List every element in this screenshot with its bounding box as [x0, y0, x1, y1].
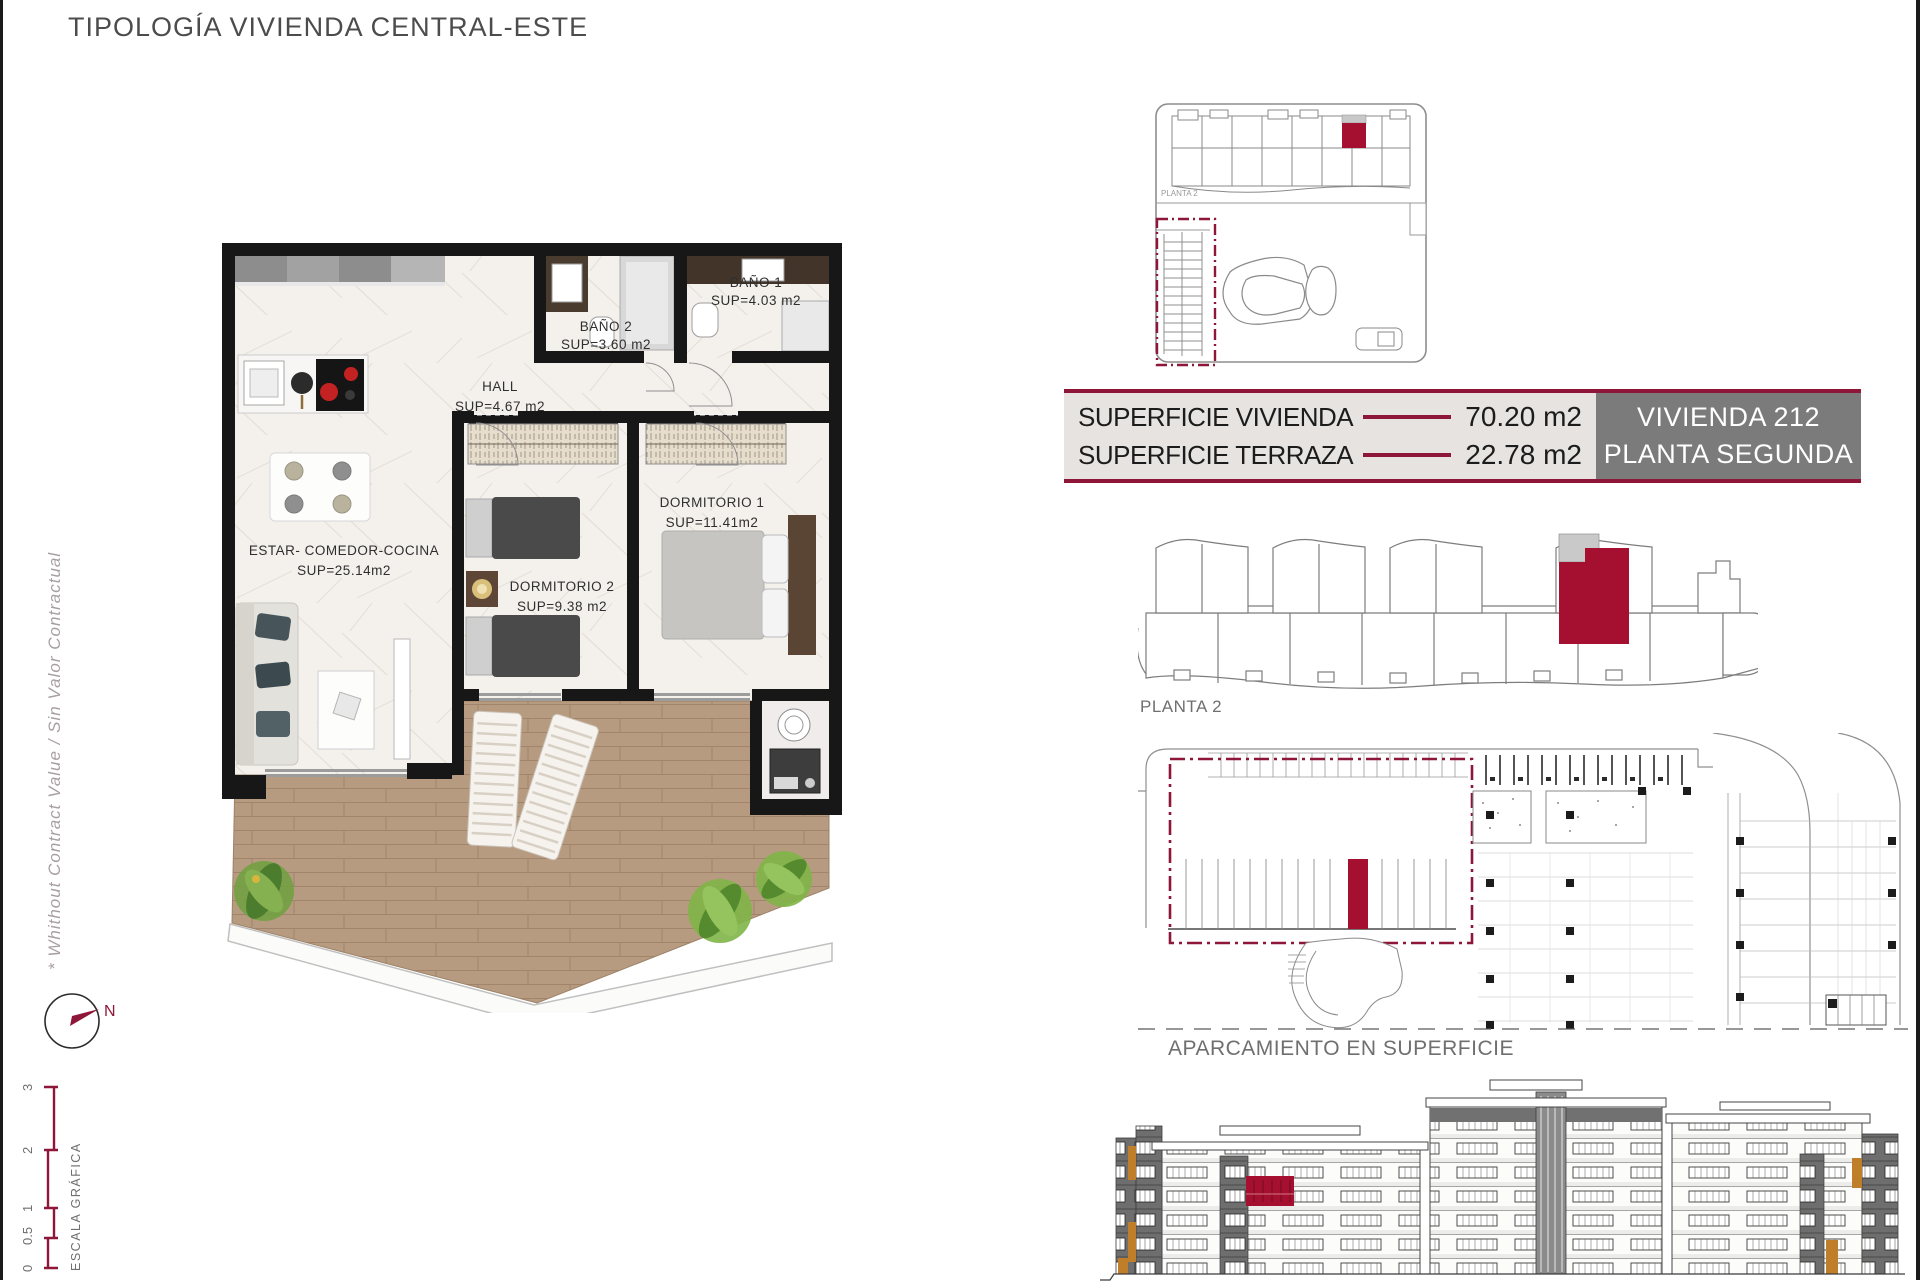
disclaimer-vertical-text: * Whithout Contract Value / Sin Valor Co…	[45, 570, 71, 970]
parking-right-grid	[1728, 793, 1896, 1025]
svg-text:SUP=9.38 m2: SUP=9.38 m2	[517, 599, 607, 614]
site-unit-highlight-cap	[1342, 115, 1366, 123]
svg-text:HALL: HALL	[482, 379, 518, 394]
floor-plan: ESTAR- COMEDOR-COCINA SUP=25.14m2 HALL S…	[222, 243, 842, 1013]
elevation-unit-highlight	[1246, 1176, 1294, 1206]
compass-north-label: N	[104, 1003, 116, 1020]
site-plan: PLANTA 2	[1060, 82, 1460, 382]
unit-number: VIVIENDA 212	[1637, 402, 1820, 433]
compass-needle	[70, 1009, 99, 1026]
site-car-shape	[1356, 328, 1402, 350]
site-unit-highlight	[1342, 123, 1366, 148]
svg-text:SUP=11.41m2: SUP=11.41m2	[666, 515, 759, 530]
orange-accent	[1128, 1222, 1136, 1262]
laundry-niche	[762, 701, 829, 801]
page-root: { "page": { "title": "TIPOLOGÍA VIVIENDA…	[0, 0, 1920, 1280]
parking-top-stalls	[1208, 753, 1468, 777]
planta2-diagram	[1138, 518, 1758, 698]
summary-table: SUPERFICIE VIVIENDA 70.20 m2 SUPERFICIE …	[1064, 389, 1861, 483]
site-pool-blobs	[1223, 257, 1336, 324]
page-right-border	[1916, 0, 1920, 1280]
parking-diagram	[1138, 733, 1908, 1035]
svg-text:SUP=4.67 m2: SUP=4.67 m2	[455, 399, 545, 414]
svg-text:SUP=25.14m2: SUP=25.14m2	[297, 563, 391, 578]
sofa	[236, 603, 298, 765]
sun-lounger	[467, 711, 522, 847]
parking-middle-grid	[1473, 787, 1693, 1029]
bed-dorm2-2	[466, 615, 580, 677]
parking-stall-highlight	[1348, 859, 1368, 929]
nightstand-dorm2	[466, 571, 498, 607]
scale-bar-title: ESCALA GRÁFICA	[68, 1142, 83, 1271]
planta2-diagram-label: PLANTA 2	[1140, 697, 1222, 717]
site-building-band	[1172, 110, 1410, 192]
summary-value: 22.78 m2	[1465, 439, 1582, 471]
elevation-ground-line	[1100, 1274, 1905, 1280]
svg-text:0: 0	[20, 1265, 35, 1272]
orange-accent	[1128, 1146, 1136, 1180]
parking-left-stalls	[1168, 859, 1456, 929]
summary-areas: SUPERFICIE VIVIENDA 70.20 m2 SUPERFICIE …	[1064, 393, 1596, 479]
bed-dorm1	[662, 515, 816, 655]
parking-landscape-blob	[1288, 938, 1402, 1028]
svg-text:3: 3	[20, 1084, 35, 1091]
svg-text:2: 2	[20, 1147, 35, 1154]
orange-accent	[1118, 1258, 1128, 1274]
svg-text:BAÑO 1: BAÑO 1	[730, 275, 783, 290]
svg-text:BAÑO 2: BAÑO 2	[580, 319, 633, 334]
svg-text:DORMITORIO 2: DORMITORIO 2	[510, 579, 615, 594]
summary-dash-line	[1363, 453, 1451, 457]
site-plan-label: PLANTA 2	[1161, 189, 1198, 198]
svg-text:SUP=4.03 m2: SUP=4.03 m2	[711, 293, 801, 308]
unit-floor: PLANTA SEGUNDA	[1604, 439, 1854, 470]
parking-top-stalls-bold	[1486, 755, 1682, 785]
page-title: TIPOLOGÍA VIVIENDA CENTRAL-ESTE	[68, 12, 588, 43]
elevation-diagram	[1100, 1062, 1912, 1282]
parking-diagram-label: APARCAMIENTO EN SUPERFICIE	[1168, 1037, 1514, 1061]
summary-row-terraza: SUPERFICIE TERRAZA 22.78 m2	[1078, 439, 1582, 471]
tv-sideboard	[394, 639, 410, 759]
bed-dorm2-1	[466, 497, 580, 559]
svg-text:ESTAR- COMEDOR-COCINA: ESTAR- COMEDOR-COCINA	[249, 543, 439, 558]
planta2-unit-highlight	[1559, 548, 1629, 644]
dining-table	[270, 453, 370, 521]
svg-text:DORMITORIO 1: DORMITORIO 1	[660, 495, 765, 510]
compass: N	[38, 985, 123, 1060]
summary-value: 70.20 m2	[1465, 401, 1582, 433]
parking-selection-box	[1170, 759, 1472, 943]
scale-tick-labels: 3 2 1 0.5 0	[20, 1084, 35, 1272]
summary-label: SUPERFICIE TERRAZA	[1078, 440, 1363, 471]
svg-text:0.5: 0.5	[20, 1227, 35, 1245]
summary-label: SUPERFICIE VIVIENDA	[1078, 402, 1363, 433]
summary-dash-line	[1363, 415, 1451, 419]
unit-identity-box: VIVIENDA 212 PLANTA SEGUNDA	[1596, 393, 1861, 479]
orange-accent	[1852, 1158, 1862, 1188]
page-left-border	[0, 0, 3, 1280]
svg-text:SUP=3.60 m2: SUP=3.60 m2	[561, 337, 651, 352]
svg-text:1: 1	[20, 1205, 35, 1212]
summary-row-vivienda: SUPERFICIE VIVIENDA 70.20 m2	[1078, 401, 1582, 433]
orange-accent	[1826, 1240, 1838, 1274]
scale-bar: 3 2 1 0.5 0 ESCALA GRÁFICA	[14, 1075, 98, 1280]
terrace-plant	[755, 851, 812, 907]
